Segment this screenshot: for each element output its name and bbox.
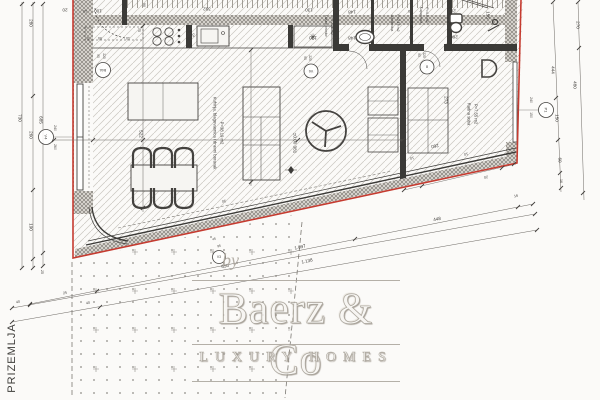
annotation-label: 148 [348,10,356,15]
annotation-label: 332 [187,33,195,38]
annotation-label: 190 [29,223,34,231]
circled-marker: P1 [539,103,554,118]
circled-marker: V6 [304,64,318,78]
circled-marker: V3 [213,251,226,264]
annotation-label: 10 [410,156,415,161]
floorplan-page: 2010100595107590392332✳13010148130101481… [0,0,600,400]
annotation-label: 40 [16,300,21,305]
annotation-label: 150 [555,114,560,122]
annotation-label: 220 [102,53,106,59]
circled-marker: 8 [420,60,434,74]
annotation-label: 685 [39,116,44,124]
annotation-label: 260 [450,35,458,40]
dining-table [131,165,197,191]
annotation-label: 90 [142,3,146,7]
annotation-label: Ulazni prostor [324,15,328,37]
svg-text:V4: V4 [44,135,49,141]
annotation-label: P=7.55 m2 [474,104,479,125]
annotation-label: P=4.0 m2 [425,7,429,22]
floor-title: PRIZEMLJA [6,317,18,399]
annotation-label: 25 [63,291,68,296]
right-exterior-wall [505,0,517,62]
annotation-label: Garderoba [390,15,394,32]
circled-marker: V4 [39,130,54,145]
annotation-label: 10 [126,36,130,40]
annotation-label: 730 [18,114,23,122]
annotation-label: P=2.19 m2 [396,14,400,31]
annotation-label: 10 [464,152,469,157]
annotation-label: P=2.05 m2 [330,17,334,34]
top-deck-band [123,0,517,8]
annotation-label: 20 [484,175,489,180]
kitchen-island [128,83,198,120]
partition-horizontal [444,44,517,51]
right-window-frame [513,62,517,142]
annotation-label: 480 [573,81,578,89]
annotation-label: 25 [40,270,44,274]
annotation-label: 90 [303,56,307,60]
annotation-label: 5 [87,36,89,40]
wc-toilet [450,14,462,33]
annotation-label: 220 [308,55,312,61]
annotation-label: 60 [558,157,563,163]
annotation-label: 148 [348,36,356,41]
annotation-label: 10 [409,35,413,39]
annotation-label: 273 [444,96,449,104]
annotation-label: 260 [448,9,456,14]
annotation-label: 10 [333,36,337,40]
partition-workroom [400,51,406,186]
annotation-label: 90 [417,53,421,57]
annotation-label: ±0.00 381 [293,133,298,154]
annotation-label: 240 [53,125,57,131]
annotation-label: 270 [576,21,581,29]
annotation-label: 155 [486,11,491,19]
annotation-label: 40 [86,301,91,306]
washbasin [356,31,374,44]
annotation-label: 280 [29,19,34,27]
annotation-label: 16 [514,194,519,199]
svg-text:P1: P1 [544,108,549,114]
annotation-label: 10 [408,9,412,13]
annotation-label: 130 [305,8,313,13]
annotation-label: 220 [422,52,426,58]
annotation-label: 90 [96,54,100,58]
annotation-label: 10 [334,9,338,13]
floor-plan-canvas: 2010100595107590392332✳13010148130101481… [0,0,600,400]
annotation-label: 10 [494,45,498,49]
annotation-label: 1.138 [301,257,314,264]
annotation-label: 240 [529,97,533,103]
svg-text:V3: V3 [217,255,221,259]
annotation-label: 260 [53,144,57,150]
annotation-label: 130 [309,36,317,41]
annotation-label: 444 [551,66,556,74]
svg-text:V6: V6 [309,69,313,73]
annotation-label: 100 [94,9,102,14]
annotation-label: 260 [29,131,34,139]
annotation-label: Kuhinja, blagovaonica i dnevni boravak [213,97,218,171]
annotation-label: 150 [529,112,533,118]
annotation-label: 30 [222,199,227,204]
annotation-label: Radna soba [467,103,472,126]
annotation-label: 20 [62,8,68,13]
circled-marker: B4A [96,63,111,78]
kitchen-sink [197,26,229,46]
annotation-label: 448 [433,216,442,223]
annotation-label: Kupaonica [419,7,423,24]
annotation-label: 10 [83,9,87,13]
annotation-label: 95 [98,36,102,40]
annotation-label: 75 [137,28,141,32]
annotation-label: P=38.19 m2 [220,122,225,145]
kitchen-pier [288,25,293,48]
annotation-label: 522 [139,130,144,138]
right-dim-chains [553,2,584,200]
svg-text:B4A: B4A [99,68,106,72]
annotation-label: 392 [203,7,211,12]
annotation-label: 16 [559,179,563,183]
